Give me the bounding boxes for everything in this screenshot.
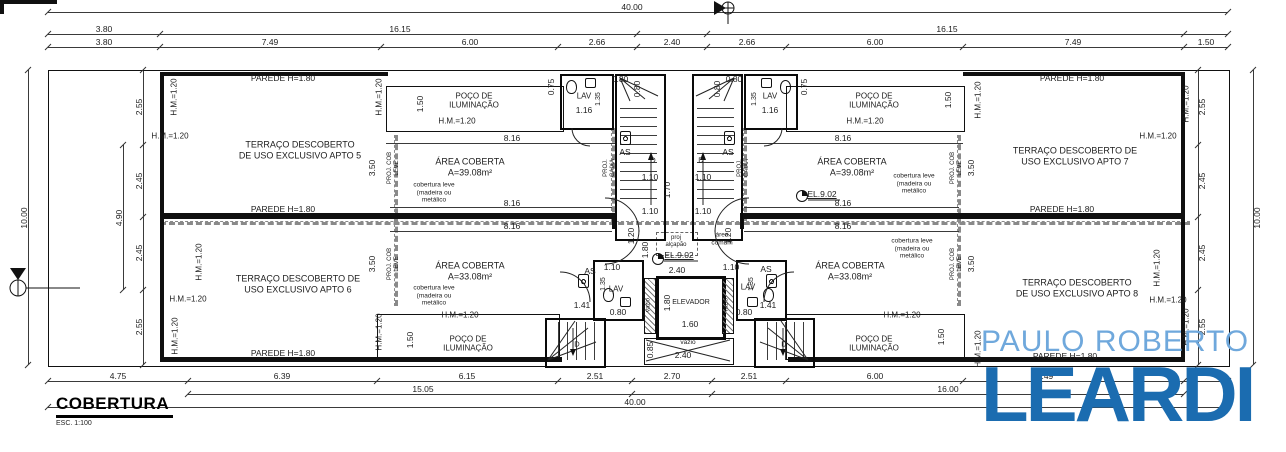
dim-label: 2.51: [741, 371, 758, 381]
dim-label: 2.66: [589, 37, 606, 47]
dimension-tick: [1195, 287, 1201, 293]
drawing-scale: ESC. 1:100: [56, 420, 92, 427]
dimension-tick: [634, 31, 640, 37]
dimension-tick: [185, 391, 191, 397]
dim-label: 6.15: [459, 371, 476, 381]
dim-label: 6.39: [274, 371, 291, 381]
stair-direction-label: D: [698, 157, 703, 166]
dimension-tick: [374, 378, 380, 384]
dimension-tick: [140, 142, 146, 148]
dim-label: 0.80: [726, 74, 743, 84]
wall-height-label: H.M.=1.20: [1152, 249, 1161, 286]
dimension-tick: [25, 67, 31, 73]
dim-label: 6.00: [867, 37, 884, 47]
door-arc: [764, 128, 782, 146]
wall-height-label: PAREDE H=1.80: [251, 348, 315, 358]
dimension-tick: [140, 362, 146, 368]
wall-height-label: PAREDE H=1.80: [1040, 73, 1104, 83]
dim-label: 2.55: [134, 99, 144, 116]
dimension-tick: [960, 44, 966, 50]
dimension-tick: [140, 214, 146, 220]
wall-height-label: PAREDE H=1.80: [1030, 204, 1094, 214]
dim-label: 1.35: [595, 92, 603, 106]
dim-label: 0.75: [799, 79, 809, 96]
dimension-tick: [120, 287, 126, 293]
dim-label: 1.50: [936, 329, 946, 346]
wall-height-label: H.M.=1.20: [846, 116, 883, 125]
dim-label: 1.10: [604, 262, 621, 272]
room-label: POÇO DE ILUMINAÇÃO: [443, 335, 493, 354]
room-label: TERRAÇO DESCOBERTO DE USO EXCLUSIVO APTO…: [1013, 145, 1137, 166]
level-label: EL.9.02: [807, 189, 836, 199]
room-label: TERRAÇO DESCOBERTO DE USO EXCLUSIVO APTO…: [1016, 277, 1138, 298]
dim-label: 10.00: [19, 207, 29, 228]
dim-label: 8.16: [835, 221, 852, 231]
dim-label: 0.80: [612, 74, 629, 84]
room-label: POÇO DE ILUMINAÇÃO: [849, 335, 899, 354]
dim-label: 1.10: [642, 206, 659, 216]
level-label: EL.9.02: [664, 250, 693, 260]
room-label: POÇO DE ILUMINAÇÃO: [849, 92, 899, 111]
note-label: cobertura leve (madeira ou metálico: [893, 173, 934, 196]
dim-label: 1.20: [626, 228, 636, 245]
note-label: PROJ. CAIXA: [603, 159, 617, 177]
dimension-tick: [1225, 9, 1231, 15]
room-label: LAV: [577, 91, 592, 100]
note-label: cobertura leve (madeira ou metálico: [413, 182, 454, 205]
wall-height-label: H.M.=1.20: [883, 310, 920, 319]
dim-label: 40.00: [621, 2, 642, 12]
dim-label: 6.00: [462, 37, 479, 47]
floor-plan-sheet: 40.003.8016.1516.153.807.496.002.662.402…: [0, 0, 1286, 452]
note-label: PROJ. CAIXA: [737, 159, 751, 177]
dim-label: 3.50: [367, 160, 377, 177]
room-label: LAV: [763, 91, 778, 100]
dim-label: 7.49: [1065, 37, 1082, 47]
dim-label: 0.80: [736, 307, 753, 317]
dim-label: 10.00: [1252, 207, 1262, 228]
dim-label: 2.40: [675, 350, 692, 360]
room-label: TERRAÇO DESCOBERTO DE USO EXCLUSIVO APTO…: [236, 273, 360, 294]
note-label: área comum: [711, 231, 732, 246]
wall-height-label: H.M.=1.20: [170, 317, 179, 354]
drawing-title: COBERTURA: [56, 394, 173, 418]
dimension-tick: [1181, 44, 1187, 50]
dim-label: 1.10: [723, 262, 740, 272]
dimension-tick: [378, 44, 384, 50]
dim-label: 7.49: [262, 37, 279, 47]
dim-label: 8.16: [504, 133, 521, 143]
dim-label: 3.50: [966, 160, 976, 177]
stair-arrow-head: [570, 349, 576, 356]
section-marker-icon: [10, 268, 80, 296]
dim-label: 0.80: [610, 307, 627, 317]
dim-label: 1.16: [762, 105, 779, 115]
dimension-tick: [1195, 67, 1201, 73]
dim-label: 1.60: [682, 319, 699, 329]
room-label: AS: [722, 147, 733, 157]
stair-direction-label: D: [650, 157, 655, 166]
dim-label: 1.41: [574, 300, 591, 310]
dim-label: 1.80: [662, 295, 672, 312]
dim-label: 3.80: [96, 24, 113, 34]
dim-label: 2.45: [1197, 173, 1207, 190]
wall-height-label: H.M.=1.20: [973, 81, 982, 118]
wall-height-label: PAREDE H=1.80: [251, 204, 315, 214]
dim-label: 1.80: [640, 242, 650, 259]
dimension-tick: [140, 67, 146, 73]
dim-label: 16.00: [937, 384, 958, 394]
wall-height-label: H.M.=1.20: [1139, 131, 1176, 140]
logo-line2: LEARDI: [981, 359, 1281, 431]
void-label: vazio: [723, 298, 730, 312]
dimension-tick: [555, 378, 561, 384]
wall-height-label: H.M.=1.20: [169, 78, 178, 115]
room-label: POÇO DE ILUMINAÇÃO: [449, 92, 499, 111]
dim-label: 6.00: [867, 371, 884, 381]
wall-height-label: H.M.=1.20: [1181, 85, 1190, 122]
wall-height-label: H.M.=1.20: [374, 78, 383, 115]
stair-direction-label: D: [574, 341, 579, 350]
dimension-tick: [45, 31, 51, 37]
level-marker-icon: [797, 191, 808, 202]
note-label: cobertura leve (madeira ou metálico: [891, 238, 932, 261]
wall-height-label: PAREDE H=1.80: [251, 73, 315, 83]
dim-label: 1.10: [695, 172, 712, 182]
note-label: PROJ. COB LEVE: [387, 152, 401, 184]
dim-label: 2.55: [134, 319, 144, 336]
dimension-tick: [45, 404, 51, 410]
wall-height-label: H.M.=1.20: [438, 116, 475, 125]
dim-label: 2.55: [1197, 99, 1207, 116]
note-label: PROJ. COB LEVE: [950, 152, 964, 184]
dimension-tick: [634, 44, 640, 50]
dimension-tick: [709, 391, 715, 397]
dimension-tick: [1181, 31, 1187, 37]
dim-label: 1.35: [748, 277, 756, 291]
dim-label: 2.70: [664, 371, 681, 381]
room-label: AS: [619, 147, 630, 157]
door-arc: [560, 272, 590, 302]
dim-label: 2.66: [739, 37, 756, 47]
dim-label: 4.75: [110, 371, 127, 381]
dim-label: 1.10: [642, 172, 659, 182]
dim-label: 3.50: [367, 256, 377, 273]
dim-label: 0.75: [546, 79, 556, 96]
dim-label: 4.90: [114, 210, 124, 227]
wall-height-label: H.M.=1.20: [151, 131, 188, 140]
dim-label: 2.45: [1197, 245, 1207, 262]
dim-label: 1.41: [760, 300, 777, 310]
note-label: PROJ. COB LEVE: [387, 248, 401, 280]
dimension-tick: [140, 287, 146, 293]
dim-label: 16.15: [389, 24, 410, 34]
room-label: ÁREA COBERTA A=39.08m²: [817, 156, 886, 177]
room-label: LAV: [609, 284, 624, 293]
north-datum-icon: [714, 1, 734, 24]
dim-label: 2.45: [134, 173, 144, 190]
dimension-tick: [783, 378, 789, 384]
stair-winder-lines: [548, 321, 596, 360]
dimension-tick: [629, 378, 635, 384]
dim-label: 2.40: [669, 265, 686, 275]
dimension-tick: [25, 362, 31, 368]
wall-height-label: H.M.=1.20: [194, 243, 203, 280]
dimension-tick: [120, 142, 126, 148]
room-label: ELEVADOR: [672, 299, 710, 307]
room-label: ÁREA COBERTA A=33.08m²: [815, 260, 884, 281]
wall-height-label: H.M.=1.20: [374, 313, 383, 350]
wall-height-label: H.M.=1.20: [1149, 295, 1186, 304]
dimension-tick: [1250, 67, 1256, 73]
stair-arrow-head: [780, 349, 786, 356]
dimension-tick: [1225, 44, 1231, 50]
void-label: vazio: [645, 298, 652, 312]
void-label: vazio: [680, 339, 695, 347]
room-label: ÁREA COBERTA A=33.08m²: [435, 260, 504, 281]
room-label: TERRAÇO DESCOBERTO DE USO EXCLUSIVO APTO…: [239, 139, 361, 160]
logo: PAULO ROBERTO LEARDI: [981, 327, 1281, 431]
dim-label: 1.50: [943, 92, 953, 109]
wall-height-label: H.M.=1.20: [169, 294, 206, 303]
dim-label: 3.80: [96, 37, 113, 47]
dimension-tick: [709, 378, 715, 384]
dim-label: 0.85: [645, 342, 655, 359]
dim-label: 0.80: [632, 81, 642, 98]
dim-label: 1.10: [695, 206, 712, 216]
dim-label: 1.16: [576, 105, 593, 115]
door-arc: [764, 272, 794, 302]
dim-label: 1.70: [662, 182, 672, 199]
dim-label: 3.50: [966, 256, 976, 273]
dimension-tick: [1225, 31, 1231, 37]
dimension-tick: [45, 44, 51, 50]
note-label: cobertura leve (madeira ou metálico: [413, 285, 454, 308]
dim-label: 0.80: [712, 81, 722, 98]
dim-label: 8.16: [835, 198, 852, 208]
dim-label: 2.40: [664, 37, 681, 47]
dimension-tick: [1195, 214, 1201, 220]
dimension-tick: [555, 44, 561, 50]
stair-direction-label: D: [781, 341, 786, 350]
dim-label: 2.45: [134, 245, 144, 262]
dimension-tick: [704, 44, 710, 50]
dim-label: 15.05: [412, 384, 433, 394]
dimension-tick: [185, 378, 191, 384]
dim-label: 1.35: [751, 92, 759, 106]
room-label: AS: [760, 264, 771, 274]
dimension-tick: [157, 44, 163, 50]
note-label: PROJ. COB LEVE: [950, 248, 964, 280]
dimension-tick: [157, 31, 163, 37]
dim-label: 16.15: [936, 24, 957, 34]
dim-label: 8.16: [504, 198, 521, 208]
dim-label: 40.00: [624, 397, 645, 407]
dim-label: 2.51: [587, 371, 604, 381]
dimension-tick: [45, 9, 51, 15]
dim-label: 1.50: [405, 332, 415, 349]
dimension-tick: [960, 378, 966, 384]
dimension-tick: [1195, 142, 1201, 148]
dimension-tick: [45, 378, 51, 384]
note-label: proj alçapão: [665, 235, 686, 249]
dim-label: 1.35: [600, 277, 608, 291]
door-arc: [572, 128, 590, 146]
room-label: ÁREA COBERTA A=39.08m²: [435, 156, 504, 177]
dim-label: 1.50: [1198, 37, 1215, 47]
level-marker-icon: [653, 254, 664, 265]
dimension-tick: [704, 31, 710, 37]
wall-height-label: H.M.=1.20: [441, 310, 478, 319]
room-label: AS: [584, 266, 595, 276]
dim-label: 1.50: [415, 96, 425, 113]
dimension-tick: [783, 44, 789, 50]
dim-label: 8.16: [835, 133, 852, 143]
dim-label: 8.16: [504, 221, 521, 231]
